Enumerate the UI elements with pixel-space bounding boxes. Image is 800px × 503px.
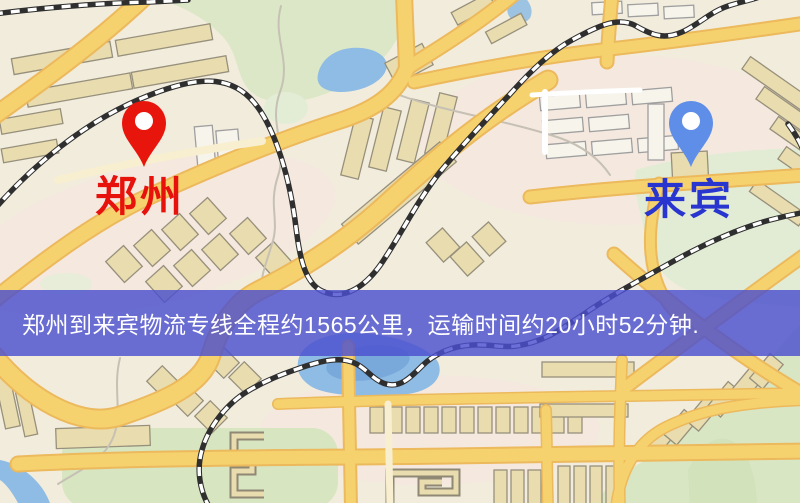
route-info-text: 郑州到来宾物流专线全程约1565公里，运输时间约20小时52分钟. (0, 306, 699, 340)
map-graphics (0, 0, 800, 503)
map-canvas[interactable]: 郑州 来宾 郑州到来宾物流专线全程约1565公里，运输时间约20小时52分钟. (0, 0, 800, 503)
destination-city-label: 来宾 (604, 178, 774, 224)
origin-city-label: 郑州 (55, 175, 225, 221)
origin-pin-icon[interactable] (120, 99, 168, 169)
destination-pin-icon[interactable] (667, 99, 715, 169)
origin-pin-hole (135, 112, 153, 130)
origin-pin-shape (122, 101, 166, 167)
destination-pin-hole (682, 112, 700, 130)
route-info-banner: 郑州到来宾物流专线全程约1565公里，运输时间约20小时52分钟. (0, 290, 800, 356)
destination-pin-shape (669, 101, 713, 167)
